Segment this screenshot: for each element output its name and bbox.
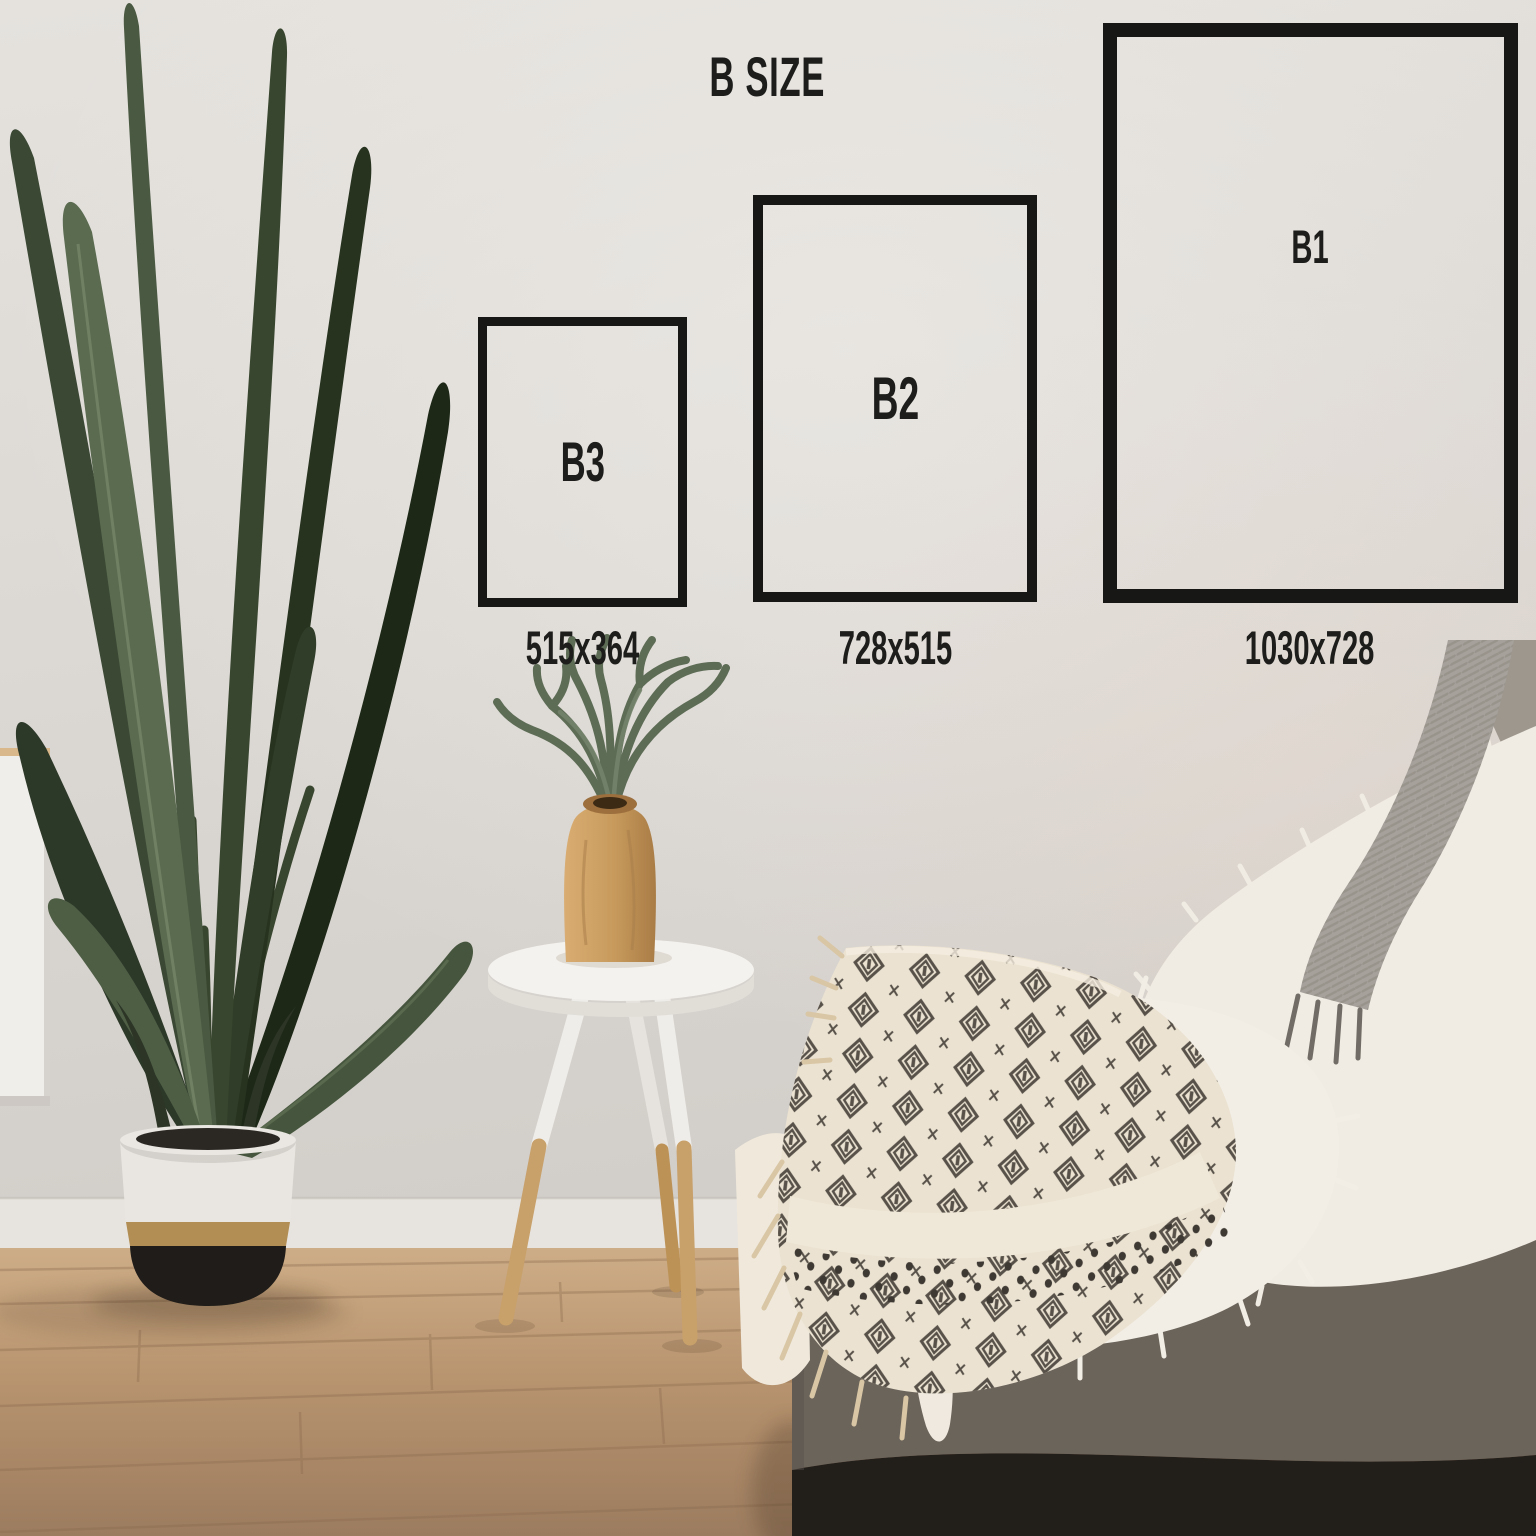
frame-label-b1: B1 (1280, 37, 1340, 270)
frame-label-b2: B2 (857, 369, 934, 429)
size-frame-b1: B1 (1103, 23, 1518, 603)
chart-title: B SIZE (587, 49, 947, 105)
frame-label-b3: B3 (547, 434, 619, 490)
frame-dimensions-b3: 515x364 (432, 624, 732, 671)
poster-size-guide-photo: B SIZE B3 515x364 B2 728x515 B1 1030x728 (0, 0, 1536, 1536)
size-frame-b3: B3 (478, 317, 687, 607)
frame-dimensions-b1: 1030x728 (1160, 624, 1460, 671)
frame-dimensions-b2: 728x515 (745, 624, 1045, 671)
size-chart-overlay: B SIZE B3 515x364 B2 728x515 B1 1030x728 (0, 0, 1536, 1536)
size-frame-b2: B2 (753, 195, 1037, 602)
